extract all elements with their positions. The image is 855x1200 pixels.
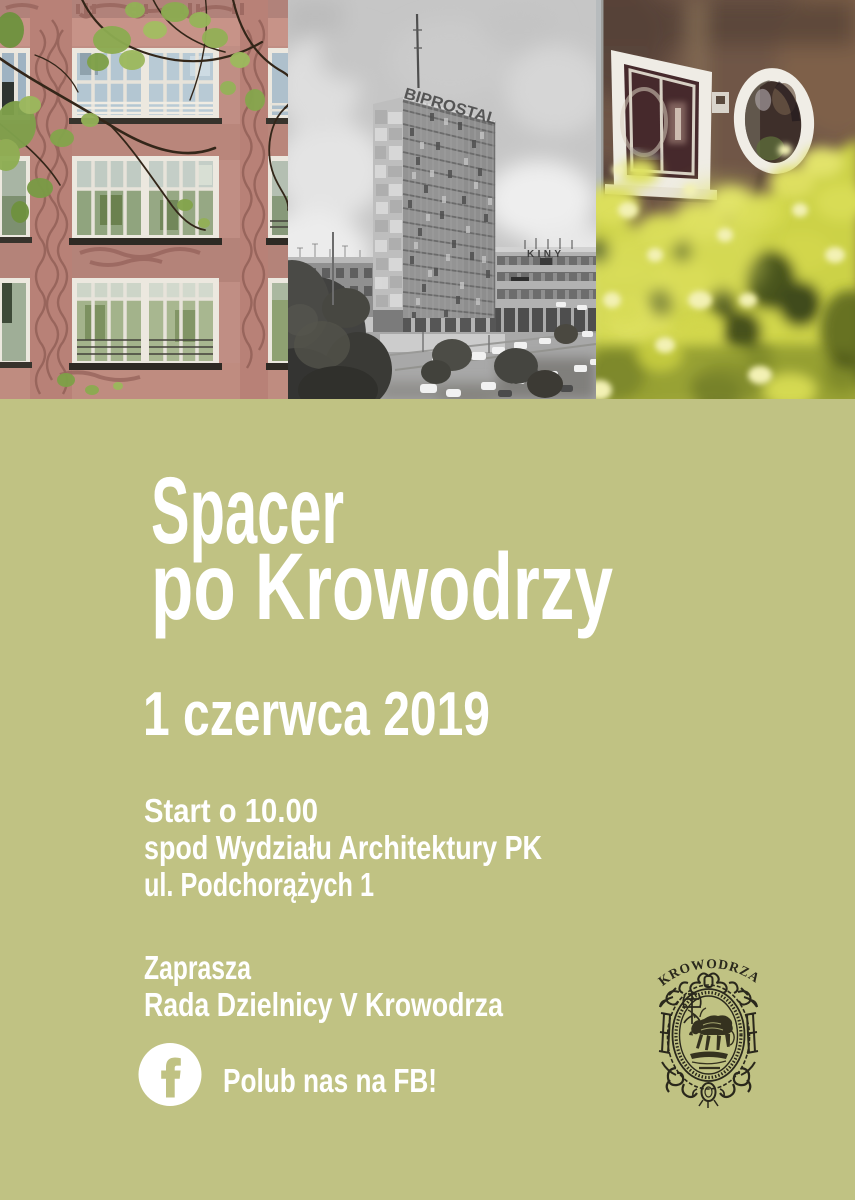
svg-text:Zaprasza: Zaprasza <box>144 949 251 986</box>
svg-text:Rada Dzielnicy V Krowodrza: Rada Dzielnicy V Krowodrza <box>144 986 504 1023</box>
svg-text:po Krowodrzy: po Krowodrzy <box>151 534 613 640</box>
svg-text:ul. Podchorążych 1: ul. Podchorążych 1 <box>144 866 374 903</box>
svg-text:KINY: KINY <box>527 249 561 260</box>
svg-text:spod Wydziału Architektury PK: spod Wydziału Architektury PK <box>144 829 542 866</box>
svg-text:Start o 10.00: Start o 10.00 <box>144 792 318 829</box>
svg-text:Polub nas na FB!: Polub nas na FB! <box>223 1062 437 1099</box>
svg-text:KROWODRZA: KROWODRZA <box>655 956 763 988</box>
svg-text:1 czerwca 2019: 1 czerwca 2019 <box>143 680 490 749</box>
